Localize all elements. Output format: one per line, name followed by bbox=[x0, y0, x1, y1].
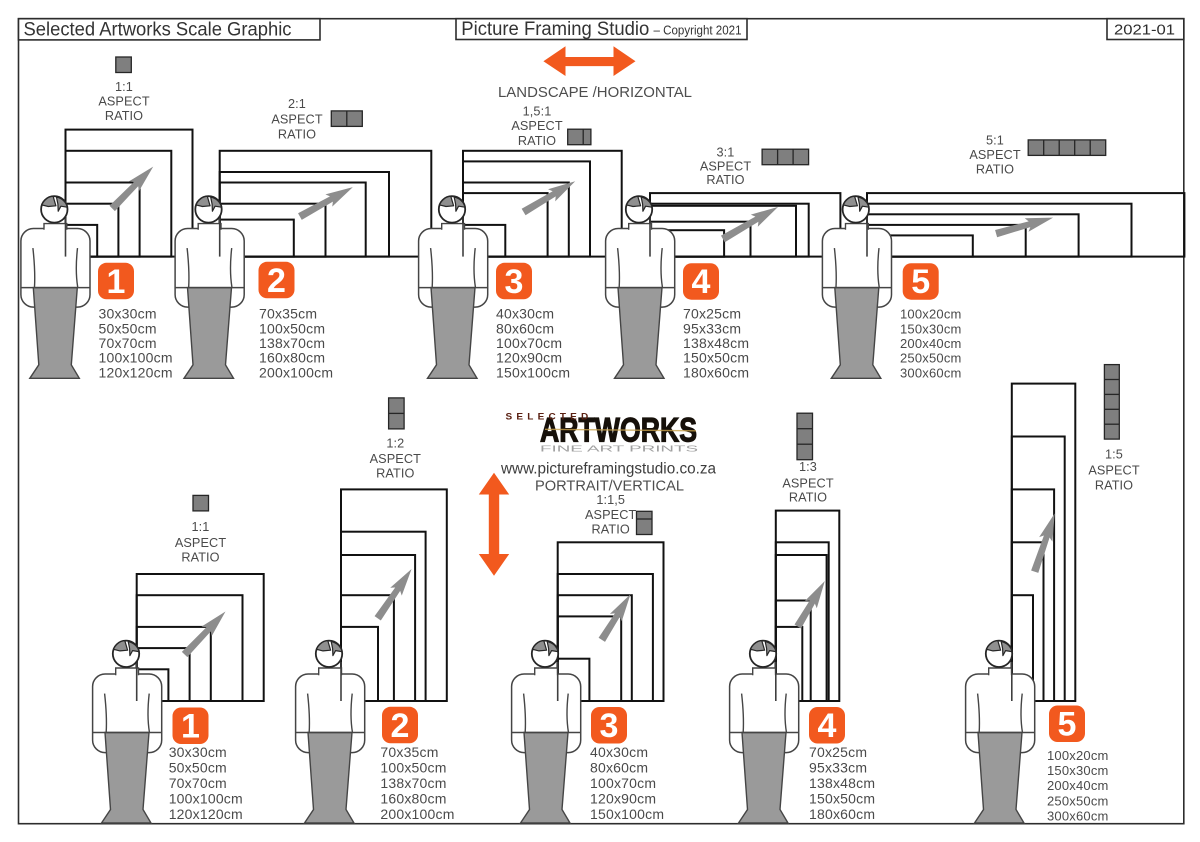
svg-text:5:1: 5:1 bbox=[986, 134, 1004, 148]
svg-text:Selected Artworks Scale Graphi: Selected Artworks Scale Graphic bbox=[24, 19, 292, 41]
svg-text:2: 2 bbox=[391, 707, 410, 745]
svg-text:1: 1 bbox=[107, 263, 126, 301]
svg-text:1:1: 1:1 bbox=[115, 80, 133, 94]
svg-text:ASPECT: ASPECT bbox=[511, 119, 563, 133]
svg-text:SELECTED: SELECTED bbox=[506, 411, 593, 422]
svg-text:RATIO: RATIO bbox=[518, 134, 556, 148]
svg-text:150x50cm: 150x50cm bbox=[809, 791, 875, 807]
svg-text:ASPECT: ASPECT bbox=[969, 148, 1021, 162]
svg-text:50x50cm: 50x50cm bbox=[169, 760, 227, 776]
svg-text:ASPECT: ASPECT bbox=[1088, 464, 1140, 478]
svg-text:40x30cm: 40x30cm bbox=[590, 744, 648, 760]
svg-text:40x30cm: 40x30cm bbox=[496, 306, 554, 322]
svg-text:300x60cm: 300x60cm bbox=[900, 365, 962, 380]
svg-text:100x100cm: 100x100cm bbox=[99, 350, 173, 366]
svg-text:RATIO: RATIO bbox=[181, 551, 219, 565]
svg-text:1,5:1: 1,5:1 bbox=[523, 105, 552, 119]
svg-text:RATIO: RATIO bbox=[976, 163, 1014, 177]
svg-text:200x100cm: 200x100cm bbox=[380, 806, 454, 822]
svg-text:RATIO: RATIO bbox=[1095, 479, 1133, 493]
svg-text:160x80cm: 160x80cm bbox=[259, 350, 325, 366]
svg-text:120x120cm: 120x120cm bbox=[169, 806, 243, 822]
svg-text:ASPECT: ASPECT bbox=[585, 508, 637, 522]
svg-text:30x30cm: 30x30cm bbox=[169, 744, 227, 760]
svg-text:120x90cm: 120x90cm bbox=[590, 791, 656, 807]
svg-text:RATIO: RATIO bbox=[706, 173, 744, 187]
svg-text:4: 4 bbox=[818, 707, 837, 745]
svg-text:2:1: 2:1 bbox=[288, 97, 306, 111]
svg-text:200x40cm: 200x40cm bbox=[900, 336, 962, 351]
svg-text:200x100cm: 200x100cm bbox=[259, 364, 333, 380]
svg-text:180x60cm: 180x60cm bbox=[683, 364, 749, 380]
svg-text:95x33cm: 95x33cm bbox=[683, 320, 741, 336]
svg-text:100x100cm: 100x100cm bbox=[169, 791, 243, 807]
svg-text:1:1,5: 1:1,5 bbox=[596, 493, 625, 507]
svg-text:100x70cm: 100x70cm bbox=[590, 775, 656, 791]
svg-text:150x30cm: 150x30cm bbox=[900, 321, 962, 336]
svg-text:250x50cm: 250x50cm bbox=[900, 351, 962, 366]
svg-text:3:1: 3:1 bbox=[717, 146, 735, 160]
svg-text:50x50cm: 50x50cm bbox=[99, 320, 157, 336]
svg-text:1: 1 bbox=[181, 708, 200, 746]
svg-text:180x60cm: 180x60cm bbox=[809, 806, 875, 822]
svg-text:RATIO: RATIO bbox=[592, 523, 630, 537]
svg-text:100x20cm: 100x20cm bbox=[900, 307, 962, 322]
svg-text:100x50cm: 100x50cm bbox=[259, 320, 325, 336]
svg-text:RATIO: RATIO bbox=[105, 109, 143, 123]
svg-text:70x35cm: 70x35cm bbox=[380, 744, 438, 760]
svg-text:100x70cm: 100x70cm bbox=[496, 335, 562, 351]
svg-text:80x60cm: 80x60cm bbox=[590, 760, 648, 776]
svg-text:250x50cm: 250x50cm bbox=[1047, 793, 1109, 808]
svg-text:150x100cm: 150x100cm bbox=[590, 806, 664, 822]
svg-text:2: 2 bbox=[267, 262, 286, 300]
svg-text:70x35cm: 70x35cm bbox=[259, 306, 317, 322]
svg-text:3: 3 bbox=[600, 707, 619, 745]
svg-text:70x25cm: 70x25cm bbox=[683, 306, 741, 322]
svg-text:4: 4 bbox=[692, 263, 711, 301]
svg-text:LANDSCAPE /HORIZONTAL: LANDSCAPE /HORIZONTAL bbox=[498, 84, 692, 101]
svg-text:80x60cm: 80x60cm bbox=[496, 320, 554, 336]
svg-text:120x90cm: 120x90cm bbox=[496, 350, 562, 366]
svg-text:95x33cm: 95x33cm bbox=[809, 760, 867, 776]
svg-text:ASPECT: ASPECT bbox=[271, 113, 323, 127]
svg-text:1:3: 1:3 bbox=[799, 460, 817, 474]
svg-text:Picture Framing Studio: Picture Framing Studio bbox=[461, 19, 649, 40]
svg-text:160x80cm: 160x80cm bbox=[380, 791, 446, 807]
svg-text:RATIO: RATIO bbox=[789, 491, 827, 505]
svg-text:138x48cm: 138x48cm bbox=[683, 335, 749, 351]
svg-text:138x70cm: 138x70cm bbox=[259, 335, 325, 351]
svg-text:5: 5 bbox=[911, 263, 930, 301]
svg-text:RATIO: RATIO bbox=[278, 127, 316, 141]
svg-text:70x25cm: 70x25cm bbox=[809, 744, 867, 760]
svg-text:www.pictureframingstudio.co.za: www.pictureframingstudio.co.za bbox=[500, 461, 716, 478]
svg-text:138x48cm: 138x48cm bbox=[809, 775, 875, 791]
svg-text:ASPECT: ASPECT bbox=[700, 160, 752, 174]
svg-text:150x100cm: 150x100cm bbox=[496, 364, 570, 380]
svg-text:100x50cm: 100x50cm bbox=[380, 760, 446, 776]
svg-text:1:5: 1:5 bbox=[1105, 448, 1123, 462]
svg-text:3: 3 bbox=[505, 263, 524, 301]
svg-text:150x30cm: 150x30cm bbox=[1047, 763, 1109, 778]
svg-text:200x40cm: 200x40cm bbox=[1047, 778, 1109, 793]
svg-text:ASPECT: ASPECT bbox=[175, 536, 227, 550]
svg-text:100x20cm: 100x20cm bbox=[1047, 748, 1109, 763]
svg-text:150x50cm: 150x50cm bbox=[683, 350, 749, 366]
svg-text:1:1: 1:1 bbox=[192, 520, 210, 534]
svg-text:138x70cm: 138x70cm bbox=[380, 775, 446, 791]
svg-text:– Copyright 2021: – Copyright 2021 bbox=[654, 23, 742, 38]
svg-text:70x70cm: 70x70cm bbox=[99, 335, 157, 351]
svg-text:2021-01: 2021-01 bbox=[1114, 23, 1175, 39]
svg-text:30x30cm: 30x30cm bbox=[99, 306, 157, 322]
svg-text:120x120cm: 120x120cm bbox=[99, 364, 173, 380]
svg-text:300x60cm: 300x60cm bbox=[1047, 809, 1109, 824]
svg-text:RATIO: RATIO bbox=[376, 466, 414, 480]
svg-text:70x70cm: 70x70cm bbox=[169, 775, 227, 791]
svg-text:ASPECT: ASPECT bbox=[782, 477, 834, 491]
svg-text:ASPECT: ASPECT bbox=[98, 95, 150, 109]
svg-text:1:2: 1:2 bbox=[386, 437, 404, 451]
svg-text:ASPECT: ASPECT bbox=[370, 452, 422, 466]
svg-text:5: 5 bbox=[1058, 706, 1077, 744]
svg-text:FINE ART PRINTS: FINE ART PRINTS bbox=[540, 444, 698, 453]
